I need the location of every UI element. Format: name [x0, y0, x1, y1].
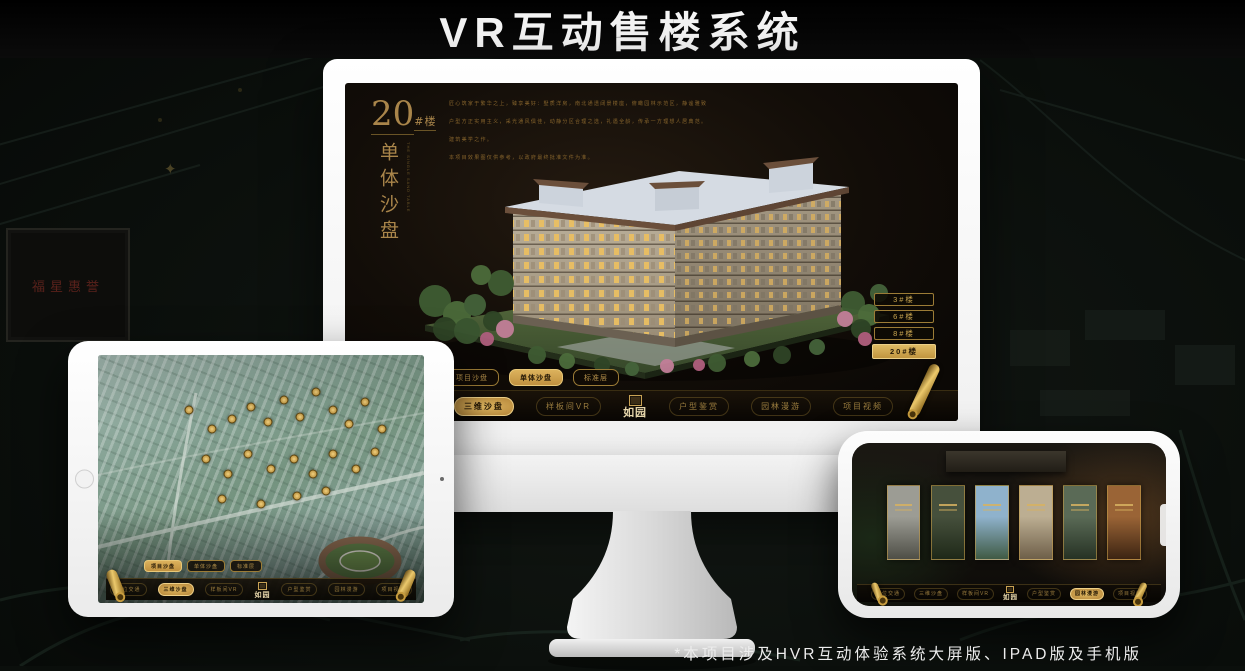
tab-项目沙盘[interactable]: 项目沙盘	[144, 560, 182, 572]
menu-item-园林漫游[interactable]: 园林漫游	[328, 583, 364, 596]
floor-button-20#楼[interactable]: 20#楼	[872, 344, 936, 359]
seal-icon	[258, 582, 267, 590]
heading-vertical-title: 单体沙盘	[375, 142, 402, 246]
description-line: 本项目效果图仅供参考，以政府最终批准文件为准。	[449, 149, 859, 167]
menu-item-三维沙盘[interactable]: 三维沙盘	[914, 588, 948, 600]
menu-item-园林漫游[interactable]: 园林漫游	[1070, 588, 1104, 600]
brand-logo-text: 如园	[1003, 594, 1018, 601]
brand-logo: 如园	[623, 395, 647, 418]
floor-button-group: 3#楼6#楼8#楼20#楼	[872, 293, 936, 359]
brand-logo: 如园	[1003, 586, 1018, 601]
description-line: 建筑美学之作。	[449, 131, 859, 149]
scene-panel-row	[887, 485, 1141, 560]
menu-item-样板间VR[interactable]: 样板间VR	[205, 583, 244, 596]
menu-item-三维沙盘[interactable]: 三维沙盘	[158, 583, 194, 596]
scene-panel-interior-green[interactable]	[931, 485, 965, 560]
background-plaque: 福星惠誉	[6, 228, 130, 342]
ipad-screen: 项目沙盘单体沙盘标准层 区位交通三维沙盘样板间VR如园户型鉴赏园林漫游项目视频	[98, 355, 424, 603]
brand-logo-text: 如园	[623, 407, 647, 418]
floor-button-8#楼[interactable]: 8#楼	[874, 327, 934, 340]
home-button[interactable]	[75, 470, 94, 489]
seal-icon	[629, 395, 642, 406]
menu-item-样板间VR[interactable]: 样板间VR	[957, 588, 994, 600]
title-bar: VR互动售楼系统	[0, 0, 1245, 58]
camera-icon	[440, 477, 444, 481]
compass-star-icon: ✦	[164, 160, 177, 178]
page-title: VR互动售楼系统	[439, 0, 805, 60]
floor-button-3#楼[interactable]: 3#楼	[874, 293, 934, 306]
phone-screen: 区位交通三维沙盘样板间VR如园户型鉴赏园林漫游项目视频	[852, 443, 1166, 606]
scene-panel-sky-building[interactable]	[975, 485, 1009, 560]
tab-单体沙盘[interactable]: 单体沙盘	[187, 560, 225, 572]
menu-item-三维沙盘[interactable]: 三维沙盘	[454, 397, 514, 416]
description-block: 匠心筑家于繁华之上，臻享美好：墅质洋房，南北通透阔景楼座，俯瞰园林示范区，静谧雅…	[449, 95, 859, 167]
menu-item-项目视频[interactable]: 项目视频	[833, 397, 893, 416]
footnote-text: *本项目涉及HVR互动体验系统大屏版、IPAD版及手机版	[674, 642, 1142, 664]
menu-item-户型鉴赏[interactable]: 户型鉴赏	[669, 397, 729, 416]
menu-item-样板间VR[interactable]: 样板间VR	[536, 397, 601, 416]
tab-标准层[interactable]: 标准层	[230, 560, 262, 572]
sandbox-tab-group: 项目沙盘单体沙盘标准层	[445, 369, 619, 386]
menu-item-户型鉴赏[interactable]: 户型鉴赏	[1027, 588, 1061, 600]
phone-notch	[1160, 504, 1166, 546]
scene-panel-courtyard-gray[interactable]	[887, 485, 921, 560]
tab-单体沙盘[interactable]: 单体沙盘	[509, 369, 563, 386]
interior-panorama-view[interactable]	[852, 443, 1166, 606]
building-number-suffix: #楼	[414, 116, 436, 131]
floor-button-6#楼[interactable]: 6#楼	[874, 310, 934, 323]
heading-subtitle-en: THE SINGLE SAND TABLE	[406, 142, 411, 246]
ipad-menu-bar: 区位交通三维沙盘样板间VR如园户型鉴赏园林漫游项目视频	[106, 578, 416, 600]
menu-item-园林漫游[interactable]: 园林漫游	[751, 397, 811, 416]
plaque-text: 福星惠誉	[32, 276, 104, 295]
menu-item-户型鉴赏[interactable]: 户型鉴赏	[281, 583, 317, 596]
scene-panel-warm-interior[interactable]	[1107, 485, 1141, 560]
scene-panel-garden[interactable]	[1063, 485, 1097, 560]
building-number: 20	[371, 97, 414, 135]
ipad-device: 项目沙盘单体沙盘标准层 区位交通三维沙盘样板间VR如园户型鉴赏园林漫游项目视频	[68, 341, 454, 617]
tab-标准层[interactable]: 标准层	[573, 369, 619, 386]
ceiling-beam	[946, 451, 1065, 472]
phone-menu-bar: 区位交通三维沙盘样板间VR如园户型鉴赏园林漫游项目视频	[857, 584, 1161, 602]
scene-panel-beige-facade[interactable]	[1019, 485, 1053, 560]
phone-device: 区位交通三维沙盘样板间VR如园户型鉴赏园林漫游项目视频	[838, 431, 1180, 618]
brand-logo: 如园	[254, 582, 270, 598]
ipad-tab-group: 项目沙盘单体沙盘标准层	[144, 560, 262, 572]
description-line: 户型方正实用主义，采光通风俱佳，动静分区合理之选，礼遇全龄，传承一方理想人居典范…	[449, 113, 859, 131]
ipad-bottom-nav: 项目沙盘单体沙盘标准层 区位交通三维沙盘样板间VR如园户型鉴赏园林漫游项目视频	[98, 557, 424, 603]
brand-logo-text: 如园	[254, 591, 270, 598]
description-line: 匠心筑家于繁华之上，臻享美好：墅质洋房，南北通透阔景楼座，俯瞰园林示范区，静谧雅…	[449, 95, 859, 113]
